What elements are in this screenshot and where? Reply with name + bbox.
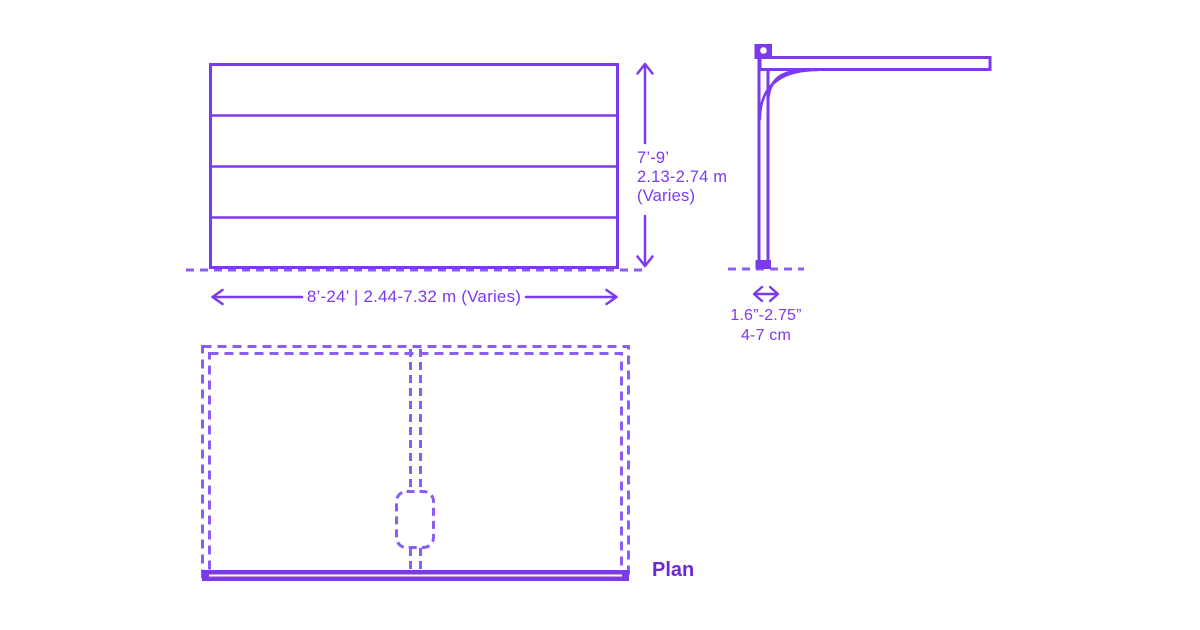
plan-outer-dashed bbox=[203, 347, 629, 577]
plan-view-label: Plan bbox=[652, 559, 694, 582]
diagram-linework bbox=[0, 0, 1200, 630]
thickness-dimension-label: 1.6”-2.75” 4-7 cm bbox=[730, 306, 801, 346]
opener-unit-dashed bbox=[397, 492, 434, 548]
plan-inner-dashed bbox=[210, 354, 622, 575]
thickness-dimension-line2: 4-7 cm bbox=[730, 326, 801, 346]
garage-door-dimensions-diagram: 7’-9’ 2.13-2.74 m (Varies) 8’-24’ | 2.44… bbox=[0, 0, 1200, 630]
plan-drawing bbox=[202, 347, 629, 582]
door-plan-bar-highlight bbox=[209, 575, 622, 577]
front-elevation-drawing bbox=[186, 65, 646, 271]
side-elevation-drawing bbox=[728, 44, 990, 269]
track-foot bbox=[756, 260, 772, 269]
door-panel-open bbox=[760, 58, 990, 70]
height-dimension-line2: 2.13-2.74 m bbox=[637, 168, 727, 187]
track-curve-inner bbox=[768, 71, 798, 104]
thickness-dimension-line1: 1.6”-2.75” bbox=[730, 306, 801, 326]
height-dimension-line1: 7’-9’ bbox=[637, 149, 727, 168]
thickness-dimension-arrow bbox=[754, 287, 778, 301]
height-dimension-label: 7’-9’ 2.13-2.74 m (Varies) bbox=[637, 149, 727, 206]
roller-pulley bbox=[760, 47, 767, 54]
height-dimension-line3: (Varies) bbox=[637, 187, 727, 206]
width-dimension-label: 8’-24’ | 2.44-7.32 m (Varies) bbox=[307, 287, 521, 306]
